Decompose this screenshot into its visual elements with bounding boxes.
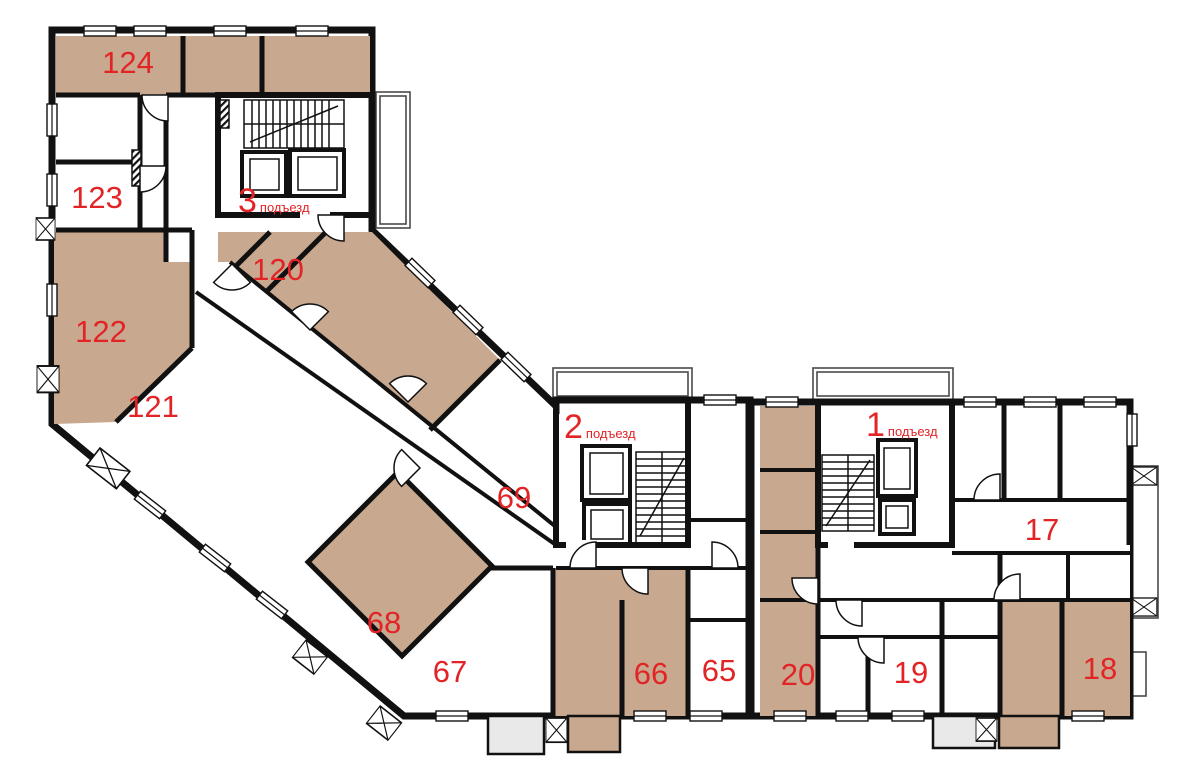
entrance-word: подъезд (260, 200, 310, 215)
balcony-x-mark (1131, 467, 1157, 485)
apartment-label-120: 120 (252, 252, 304, 287)
apartment-label-122: 122 (75, 314, 127, 349)
elevator-icon (878, 440, 916, 534)
balcony-entrance-2-inner (557, 372, 688, 396)
floor-plan-canvas: 124 123 122 121 120 69 68 67 66 65 20 19… (0, 0, 1186, 773)
entrance-word: подъезд (888, 424, 938, 439)
balcony-x-mark (37, 366, 59, 392)
vent-shaft-icon (220, 100, 229, 128)
entrance-number: 3 (238, 182, 257, 220)
elevator-icon (242, 150, 344, 196)
apartment-label-69: 69 (497, 480, 531, 515)
balcony-18 (999, 716, 1059, 748)
staircase-icon (636, 452, 688, 544)
apartment-label-66: 66 (634, 656, 668, 691)
apartment-label-67: 67 (433, 654, 467, 689)
apartment-label-121: 121 (127, 389, 179, 424)
balcony-x-mark (546, 718, 567, 742)
door-opening (828, 540, 854, 550)
entrance-label-2: 2подъезд (564, 408, 636, 446)
apartment-label-65: 65 (702, 653, 736, 688)
balcony-entrance-1-inner (817, 372, 949, 396)
balcony-x-mark (976, 718, 997, 741)
balcony-66 (568, 716, 620, 752)
apartment-label-19: 19 (894, 655, 928, 690)
elevator-icon (582, 446, 630, 544)
entrance-number: 2 (564, 408, 583, 446)
bottom-balconies (488, 716, 1059, 754)
apartment-label-123: 123 (71, 180, 123, 215)
balcony-right-strip (1130, 466, 1158, 618)
apartment-label-17: 17 (1025, 512, 1059, 547)
apartment-label-18: 18 (1083, 651, 1117, 686)
entrance-label-1: 1подъезд (866, 406, 938, 444)
entrance-label-3: 3подъезд (238, 182, 310, 220)
entrance-word: подъезд (586, 426, 636, 441)
balcony-67 (488, 716, 544, 754)
apartment-label-124: 124 (102, 45, 154, 80)
balcony-x-mark (36, 218, 55, 240)
staircase-icon (822, 455, 874, 531)
staircase-icon (244, 100, 344, 148)
apartment-label-20: 20 (781, 657, 815, 692)
floor-plan-page: 124 123 122 121 120 69 68 67 66 65 20 19… (0, 0, 1186, 773)
balcony-x-mark (1131, 598, 1157, 616)
balcony-entrance-3-inner (380, 96, 406, 224)
apartment-label-68: 68 (367, 605, 401, 640)
entrance-number: 1 (866, 406, 885, 444)
